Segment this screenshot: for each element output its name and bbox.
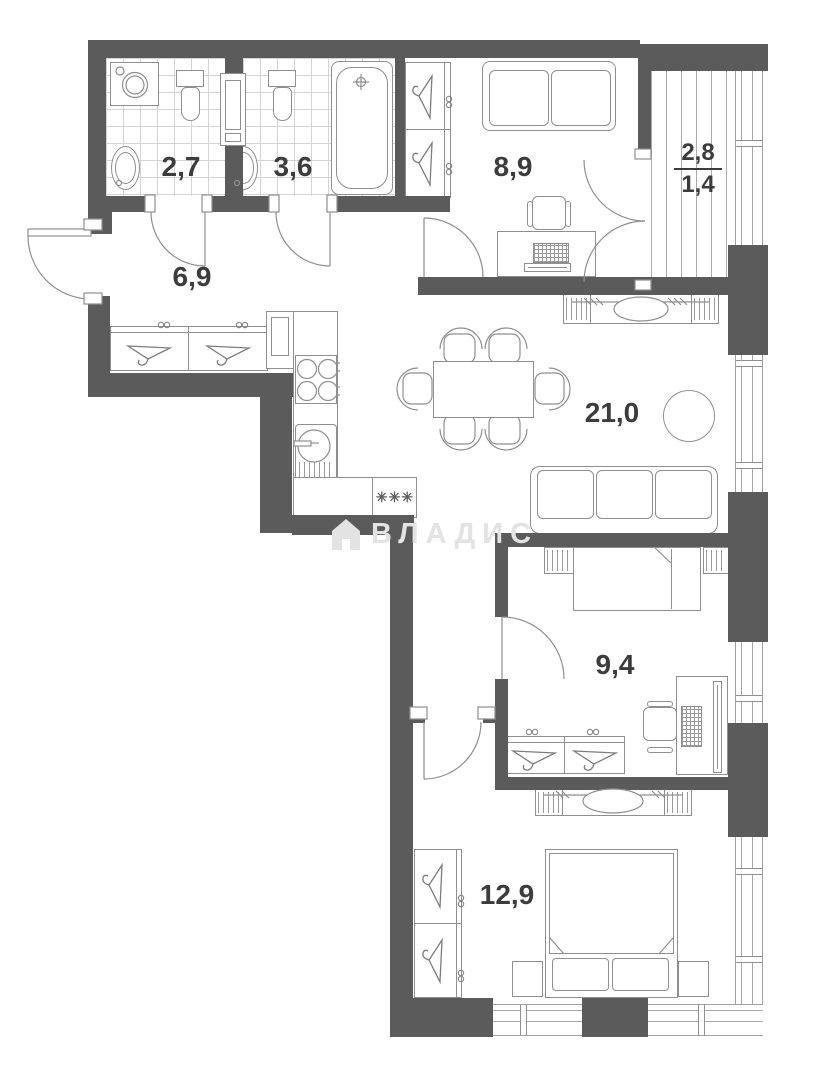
- door-arc: [151, 212, 205, 266]
- room-area-label: 12,9: [468, 879, 546, 911]
- wall: [88, 196, 150, 212]
- wardrobe-rail: [110, 332, 268, 333]
- toilet-bowl: [181, 87, 200, 121]
- office-chair: [532, 196, 566, 230]
- pillow: [612, 958, 669, 991]
- toilet-tank: [268, 70, 296, 87]
- wall: [88, 40, 106, 196]
- bathtub-inner: [336, 67, 388, 189]
- window-mullion: [736, 868, 762, 875]
- chair: [489, 334, 520, 363]
- wall: [88, 40, 640, 58]
- door-leaf: [28, 229, 91, 236]
- window-mullion: [698, 1005, 705, 1035]
- nightstand-detail: [706, 550, 726, 571]
- wardrobe-divider: [564, 736, 565, 774]
- door-arc: [276, 212, 330, 266]
- room-area-label: 2,7: [149, 151, 213, 183]
- sofa-cushion: [596, 470, 653, 519]
- chair-armrest: [647, 701, 673, 707]
- nightstand-detail: [547, 550, 571, 571]
- handle-curl-icon: [526, 729, 537, 734]
- window-mullion: [736, 462, 762, 469]
- shelf-books: [667, 792, 689, 813]
- chair-armrest: [565, 201, 571, 227]
- room-area-label: 21,0: [573, 397, 651, 429]
- wall: [728, 245, 768, 355]
- chair: [444, 334, 475, 363]
- sofa-cushion: [551, 70, 611, 126]
- chair: [489, 415, 520, 444]
- wall: [390, 515, 413, 1037]
- wall: [638, 58, 651, 158]
- floor-plan: ✳✳✳: [0, 0, 817, 1080]
- pillow: [552, 958, 609, 991]
- dining-table: [433, 361, 534, 418]
- fraction-bar: [674, 168, 722, 170]
- toilet-tank: [176, 70, 204, 87]
- wall: [495, 777, 730, 790]
- wall: [390, 998, 493, 1037]
- toilet-bowl: [273, 87, 292, 121]
- shelf-books: [694, 298, 716, 320]
- balcony-area-full: 2,8: [672, 139, 724, 167]
- balcony-area-label: 2,8 1,4: [672, 139, 724, 198]
- wardrobe-divider: [188, 326, 189, 371]
- house-icon: [330, 516, 362, 552]
- chair-armrest: [647, 747, 673, 753]
- freezer-marker: ✳✳✳: [373, 489, 417, 506]
- wall: [640, 44, 768, 71]
- wall: [260, 373, 292, 533]
- bed-single: [573, 547, 701, 611]
- wardrobe-rail: [444, 62, 445, 198]
- room-area-label: 6,9: [158, 261, 226, 293]
- wall: [88, 296, 110, 376]
- chair: [535, 373, 564, 404]
- chair: [444, 415, 475, 444]
- chair-armrest: [527, 201, 533, 227]
- fridge-inner: [271, 317, 289, 356]
- round-table: [663, 390, 715, 442]
- window-mullion: [736, 956, 762, 963]
- wall: [495, 547, 508, 617]
- wall: [582, 998, 648, 1037]
- watermark: ВЛАДИС: [330, 516, 538, 552]
- sofa-cushion: [537, 470, 594, 519]
- room-area-label: 9,4: [582, 649, 648, 681]
- door-jamb: [413, 710, 425, 723]
- wall: [88, 212, 112, 234]
- balcony-area-reduced: 1,4: [672, 171, 724, 199]
- room-area-label: 8,9: [480, 151, 546, 183]
- wardrobe-divider: [414, 923, 462, 924]
- sink-basin: [115, 152, 136, 184]
- wall: [207, 196, 277, 212]
- wall: [395, 40, 405, 196]
- monitor-line: [717, 685, 718, 769]
- sofa-cushion: [655, 470, 712, 519]
- shelf-books: [538, 792, 560, 813]
- shelf-books: [566, 298, 588, 320]
- wardrobe-divider: [405, 129, 451, 130]
- window-mullion: [736, 360, 762, 367]
- door-arc: [502, 617, 564, 679]
- office-chair: [643, 707, 677, 741]
- door-arc: [424, 722, 481, 779]
- stove: [295, 355, 337, 404]
- room-area-label: 3,6: [261, 151, 325, 183]
- window-mullion: [736, 695, 762, 702]
- nightstand: [678, 961, 709, 997]
- monitor-line: [528, 267, 567, 268]
- wall: [728, 723, 768, 837]
- pillow-divider: [671, 549, 672, 609]
- vent-shaft-inner: [225, 133, 241, 142]
- wall: [495, 679, 508, 777]
- bed-blanket: [549, 853, 674, 954]
- wall: [334, 196, 450, 212]
- wall: [728, 492, 768, 642]
- sofa-cushion: [489, 70, 549, 126]
- wall: [418, 277, 730, 295]
- handle-curl-icon: [587, 729, 598, 734]
- keyboard: [681, 706, 702, 747]
- keyboard: [533, 243, 569, 263]
- door-arc: [584, 160, 645, 221]
- vent-shaft-inner: [225, 80, 241, 130]
- door-arc: [28, 236, 91, 299]
- washing-machine: [110, 62, 159, 106]
- window-mullion: [736, 140, 762, 147]
- door-arc: [424, 218, 483, 277]
- door-jamb: [483, 710, 495, 723]
- watermark-text: ВЛАДИС: [371, 518, 538, 551]
- nightstand: [512, 961, 543, 997]
- chair: [403, 373, 432, 404]
- window-mullion: [520, 1005, 527, 1035]
